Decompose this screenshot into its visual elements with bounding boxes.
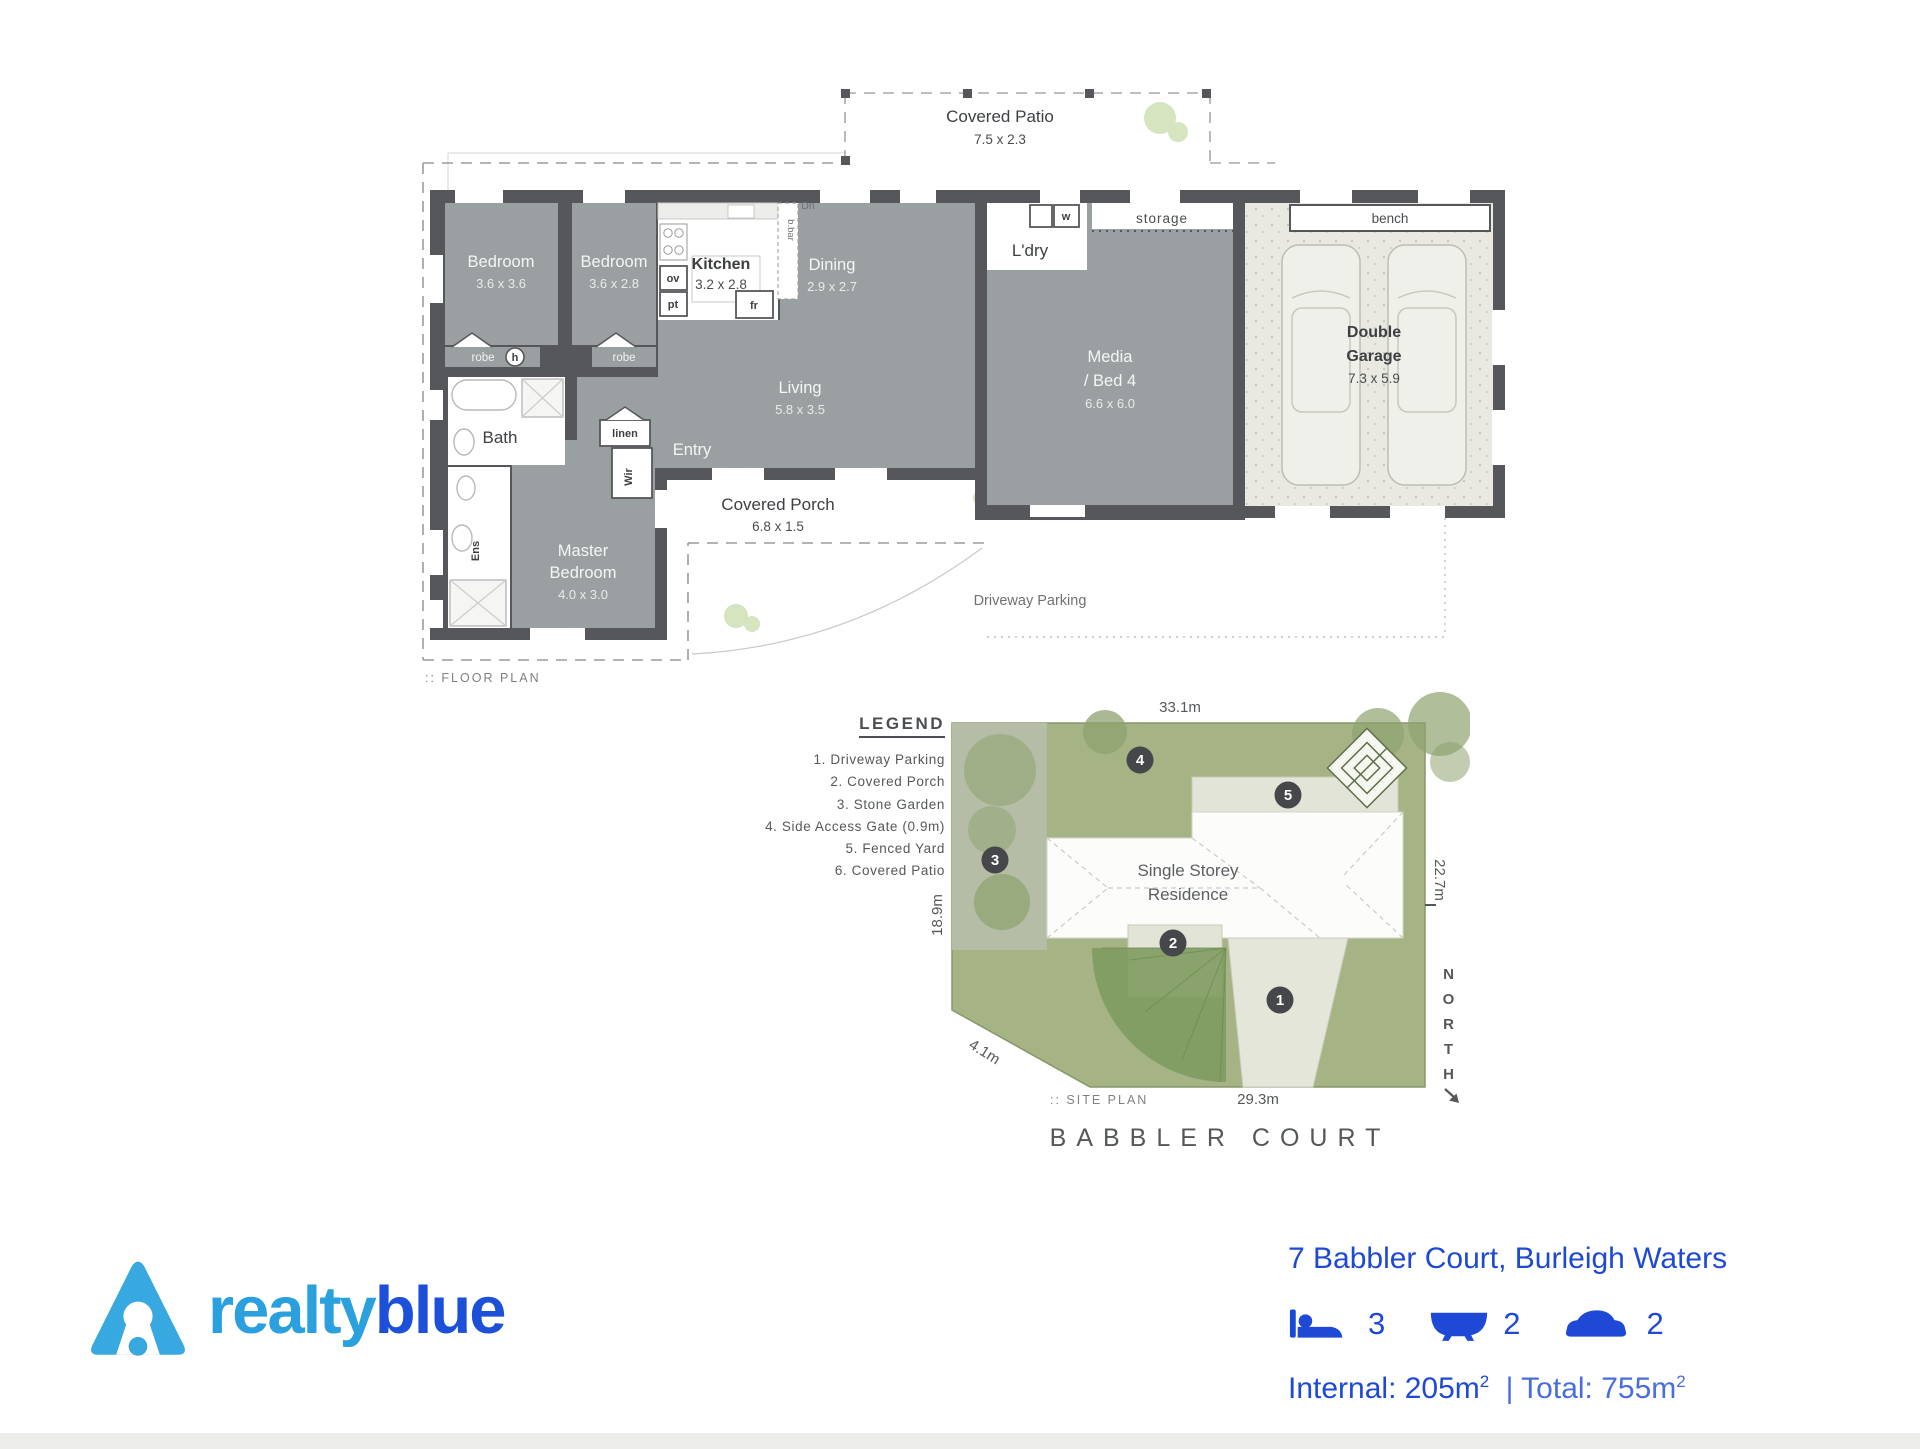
breakfast-bar (778, 203, 798, 299)
marker-2: 2 (1160, 930, 1187, 957)
room-label: Living (778, 379, 821, 397)
room-label-porch: Covered Porch (721, 495, 834, 514)
property-features: 3 2 2 (1288, 1304, 1664, 1344)
laundry-label: L'dry (1012, 241, 1049, 260)
north-arrow-icon (1441, 1086, 1463, 1108)
room-dims: 7.3 x 5.9 (1348, 371, 1400, 386)
roof-overhang-line (448, 153, 845, 190)
dim-left: 18.9m (930, 894, 946, 936)
basin-icon (452, 525, 472, 551)
driveway-label: Driveway Parking (974, 593, 1087, 609)
storage-label: storage (1136, 211, 1188, 226)
room-label: / Bed 4 (1084, 372, 1136, 390)
dim-top: 33.1m (1159, 699, 1201, 716)
brand-house-icon (86, 1258, 190, 1362)
area-total-sup: 2 (1676, 1372, 1685, 1391)
covered-patio-outline (845, 93, 1275, 163)
marker-1: 1 (1267, 987, 1294, 1014)
room-bedroom2 (572, 203, 656, 345)
room-label: Bedroom (550, 564, 617, 582)
car-count-icon (1561, 1304, 1631, 1344)
room-label: Bedroom (581, 253, 648, 271)
robe-label: robe (612, 352, 635, 364)
toilet-icon (454, 429, 474, 455)
svg-text:4: 4 (1136, 752, 1145, 769)
room-dims: 3.6 x 3.6 (476, 276, 526, 291)
property-areas: Internal: 205m2 | Total: 755m2 (1288, 1372, 1686, 1406)
room-dims: 6.8 x 1.5 (752, 519, 804, 534)
svg-text:5: 5 (1284, 787, 1292, 804)
room-dining-living (780, 203, 975, 468)
room-label-garage: Double (1347, 324, 1401, 341)
room-label-patio: Covered Patio (946, 107, 1054, 126)
area-internal-sup: 2 (1480, 1372, 1489, 1391)
svg-text:1: 1 (1276, 992, 1284, 1009)
marker-3: 3 (982, 847, 1009, 874)
brand-logo: realtyblue (86, 1258, 505, 1362)
bottom-edge-strip (0, 1433, 1920, 1449)
floor-plan-tag: :: FLOOR PLAN (425, 671, 541, 685)
svg-text:3: 3 (991, 852, 999, 869)
page-root: { "floor_plan": { "plan_label": ":: FLOO… (0, 0, 1920, 1449)
legend-item: 6. Covered Patio (600, 860, 945, 882)
toilet-icon (457, 476, 475, 500)
room-dims: 7.5 x 2.3 (974, 132, 1026, 147)
room-dims: 4.0 x 3.0 (558, 587, 608, 602)
site-plan-tag: :: SITE PLAN (1050, 1093, 1148, 1107)
car-count: 2 (1647, 1306, 1664, 1342)
dn-label: Dn (801, 200, 815, 212)
room-label-kitchen: Kitchen (692, 256, 751, 273)
room-dims: 3.6 x 2.8 (589, 276, 639, 291)
svg-text:2: 2 (1169, 935, 1177, 952)
room-label: Dining (809, 256, 856, 274)
washer-label: w (1061, 211, 1071, 223)
wir-label: Wir (623, 467, 635, 485)
bbar-label: b.bar (785, 219, 796, 241)
brand-wordmark-blue: blue (375, 1273, 505, 1348)
north-label: NORTH (1440, 966, 1457, 1091)
bed-count: 3 (1368, 1306, 1385, 1342)
driveway-dotted (987, 518, 1445, 637)
car-icon (1282, 245, 1360, 485)
car-icon (1388, 245, 1466, 485)
brand-wordmark-realty: realty (208, 1273, 375, 1348)
area-total: | Total: 755m (1506, 1372, 1677, 1405)
driveway-arc (692, 548, 982, 654)
bath-icon (1429, 1304, 1489, 1344)
pt-label: pt (668, 299, 679, 311)
floor-plan: Bedroom 3.6 x 3.6 Bedroom 3.6 x 2.8 Kitc… (340, 60, 1540, 710)
legend-item: 1. Driveway Parking (600, 749, 945, 771)
bench-label: bench (1372, 211, 1409, 226)
ov-label: ov (667, 273, 681, 285)
room-label: Media (1088, 348, 1134, 366)
legend-item: 2. Covered Porch (600, 771, 945, 793)
legend-item: 4. Side Access Gate (0.9m) (600, 816, 945, 838)
property-address: 7 Babbler Court, Burleigh Waters (1288, 1242, 1727, 1276)
laundry-fixtures (1030, 205, 1079, 227)
room-label-garage: Garage (1346, 348, 1401, 365)
dim-bottom: 29.3m (1237, 1091, 1279, 1108)
room-dims: 3.2 x 2.8 (695, 277, 747, 292)
room-dims: 2.9 x 2.7 (807, 279, 857, 294)
legend-item: 3. Stone Garden (600, 794, 945, 816)
dim-corner: 4.1m (966, 1036, 1003, 1068)
bed-icon (1288, 1304, 1350, 1344)
legend-item: 5. Fenced Yard (600, 838, 945, 860)
residence-label: Residence (1148, 885, 1228, 904)
room-dims: 5.8 x 3.5 (775, 402, 825, 417)
linen-label: linen (612, 428, 638, 440)
street-name: BABBLER COURT (1030, 1124, 1410, 1153)
brand-wordmark: realtyblue (208, 1277, 505, 1344)
fr-label: fr (750, 300, 759, 312)
marker-5: 5 (1275, 782, 1302, 809)
dim-right: 22.7m (1431, 859, 1448, 901)
room-label: Master (558, 542, 609, 560)
entry-label: Entry (673, 441, 712, 459)
stove-icon (660, 224, 687, 260)
bath-label: Bath (483, 428, 518, 447)
room-dims: 6.6 x 6.0 (1085, 396, 1135, 411)
area-internal: Internal: 205m (1288, 1372, 1480, 1405)
residence-label: Single Storey (1137, 861, 1239, 880)
legend-title: LEGEND (859, 714, 945, 738)
ens-label: Ens (470, 541, 482, 561)
bath-count: 2 (1503, 1306, 1520, 1342)
room-bedroom1 (445, 203, 558, 345)
site-plan: Single Storey Residence 1 2 3 4 5 33.1m … (930, 690, 1470, 1110)
bathtub-icon (452, 380, 516, 410)
marker-4: 4 (1127, 747, 1154, 774)
hotwater-label: h (512, 352, 519, 364)
legend: LEGEND 1. Driveway Parking 2. Covered Po… (600, 714, 945, 883)
robe-label: robe (471, 352, 494, 364)
room-label: Bedroom (468, 253, 535, 271)
